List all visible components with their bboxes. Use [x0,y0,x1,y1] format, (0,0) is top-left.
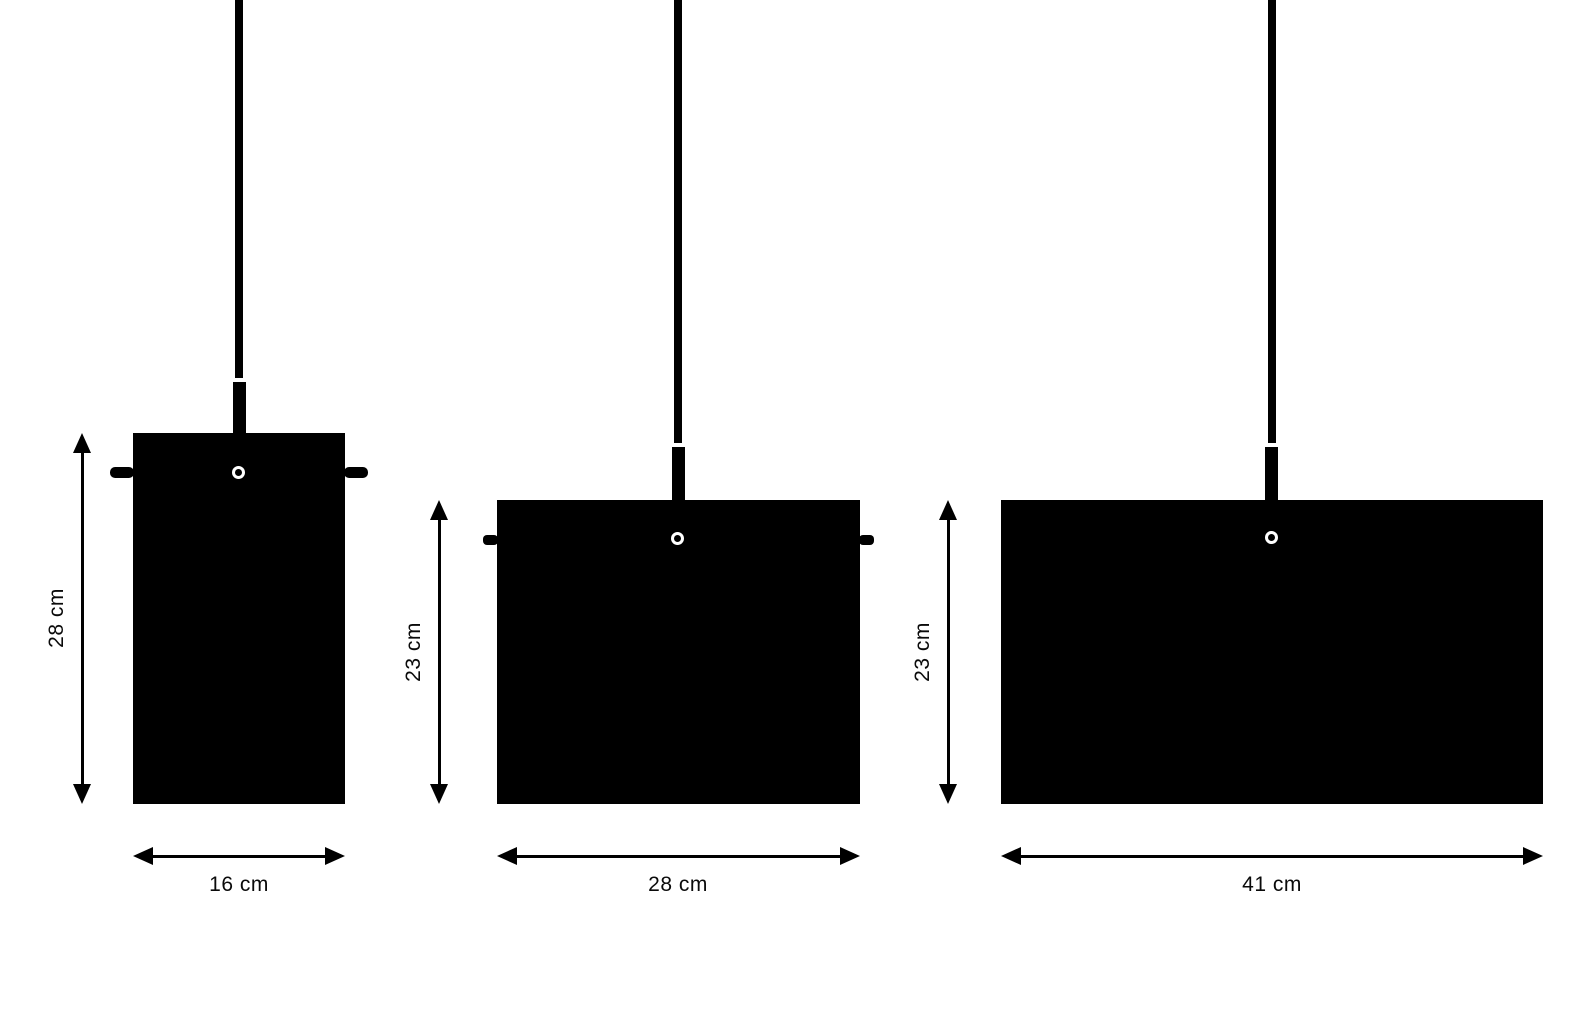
cord-socket [672,447,685,500]
arrow-line [81,445,84,792]
width-dimension-arrow [497,847,860,865]
pendant-lamp-dimension-diagram: 28 cm 16 cm 23 cm 28 cm [0,0,1596,1018]
arrow-down-icon [430,784,448,804]
arrow-line [438,512,441,792]
lamp-shade [1001,500,1543,804]
arrow-down-icon [73,784,91,804]
height-dimension-arrow [73,433,91,804]
cord-socket [1265,447,1278,500]
eyelet-hole-icon [1265,531,1278,544]
lamp-shade [497,500,860,804]
arrow-line [509,855,848,858]
lamp-shade [133,433,345,804]
suspension-cord [1268,0,1276,443]
cord-socket [233,382,246,433]
height-dimension-label: 23 cm [402,622,426,682]
width-dimension-arrow [133,847,345,865]
height-dimension-arrow [430,500,448,804]
height-dimension-arrow [939,500,957,804]
arrow-line [1013,855,1531,858]
mounting-pin-left [110,467,134,478]
mounting-pin-right [344,467,368,478]
arrow-down-icon [939,784,957,804]
suspension-cord [235,0,243,378]
arrow-line [145,855,333,858]
height-dimension-label: 23 cm [911,622,935,682]
width-dimension-label: 41 cm [1242,873,1302,897]
eyelet-hole-icon [671,532,684,545]
eyelet-hole-icon [232,466,245,479]
arrow-line [947,512,950,792]
mounting-pin-right [859,535,874,545]
suspension-cord [674,0,682,443]
height-dimension-label: 28 cm [45,588,69,648]
mounting-pin-left [483,535,498,545]
arrow-right-icon [1523,847,1543,865]
arrow-right-icon [325,847,345,865]
width-dimension-label: 16 cm [209,873,269,897]
width-dimension-label: 28 cm [648,873,708,897]
arrow-right-icon [840,847,860,865]
width-dimension-arrow [1001,847,1543,865]
